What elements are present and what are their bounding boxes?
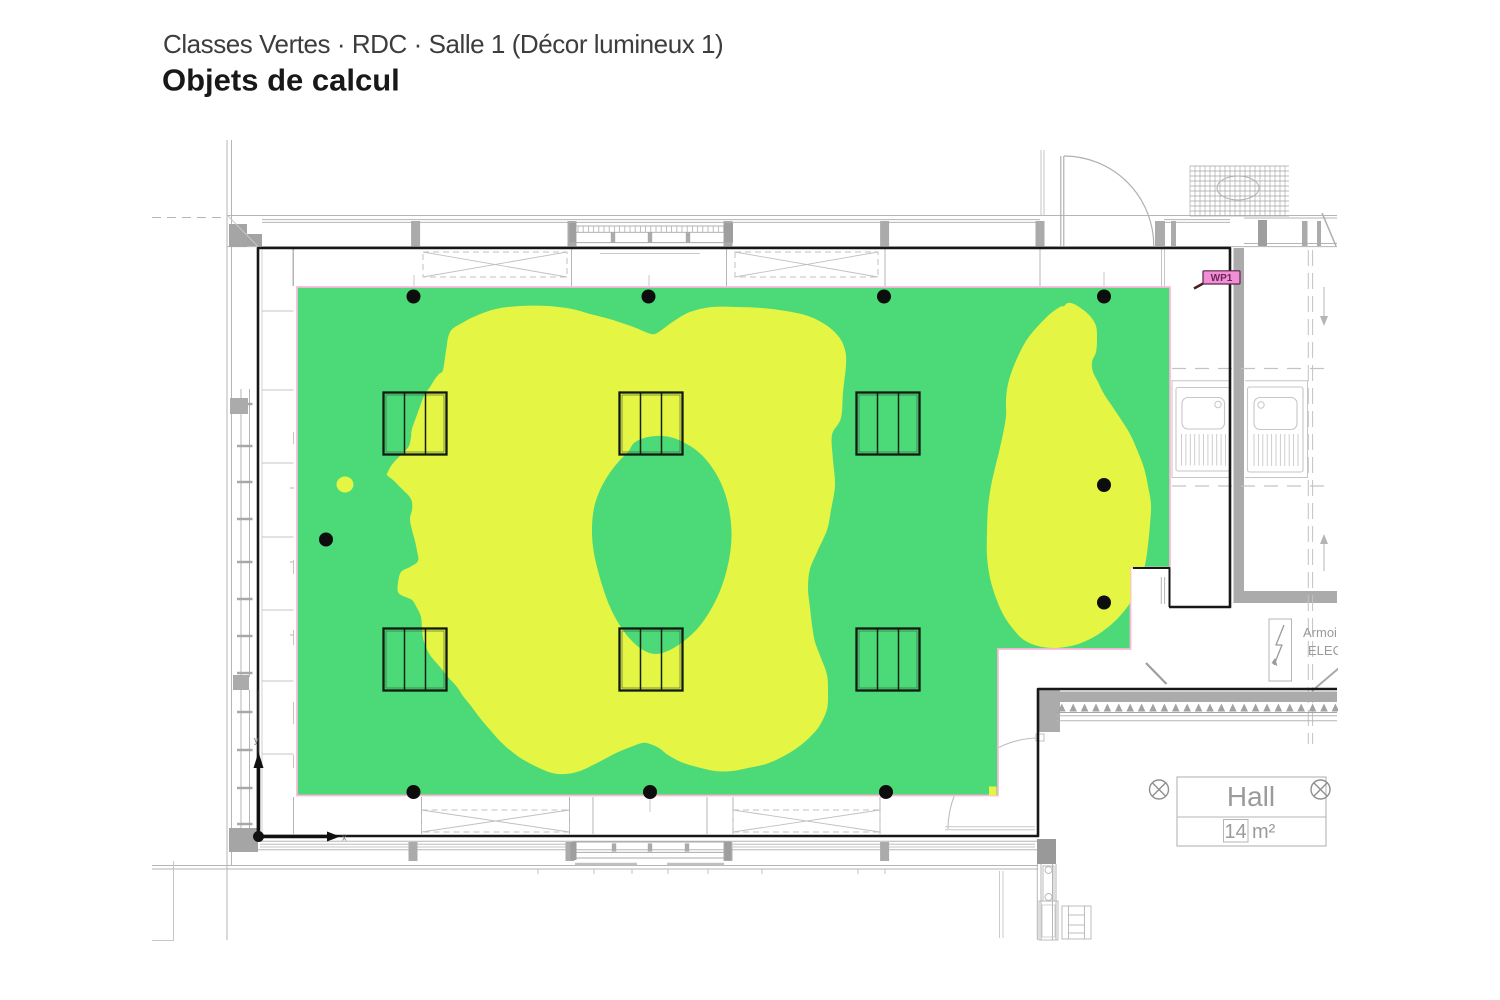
svg-text:x: x <box>342 833 347 843</box>
svg-text:14: 14 <box>1224 821 1246 843</box>
svg-text:Hall: Hall <box>1227 781 1275 812</box>
svg-text:Objets de calcul: Objets de calcul <box>162 63 400 98</box>
svg-text:m²: m² <box>1252 821 1276 843</box>
svg-text:Classes Vertes · RDC · Salle 1: Classes Vertes · RDC · Salle 1 (Décor lu… <box>163 29 723 59</box>
svg-text:WP1: WP1 <box>1211 273 1233 284</box>
svg-text:Armoi: Armoi <box>1303 625 1337 640</box>
svg-text:y: y <box>254 735 259 745</box>
